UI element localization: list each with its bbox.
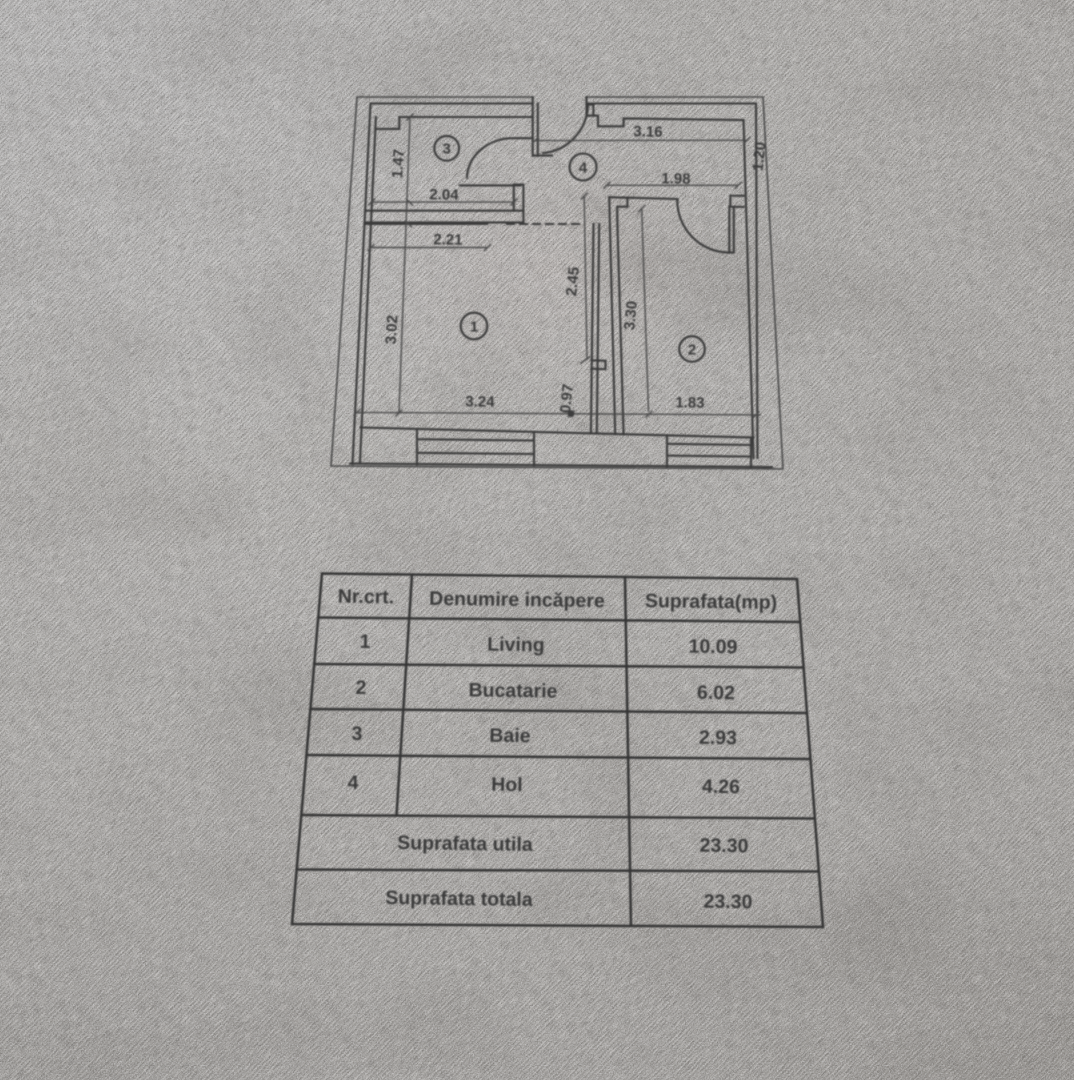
svg-text:3.16: 3.16 [633, 123, 663, 141]
svg-text:2: 2 [355, 677, 366, 699]
svg-text:Hol: Hol [491, 774, 523, 796]
svg-text:Nr.crt.: Nr.crt. [338, 586, 395, 609]
svg-text:Bucatarie: Bucatarie [468, 679, 557, 702]
svg-text:1.98: 1.98 [661, 170, 690, 188]
svg-text:0.97: 0.97 [557, 383, 577, 414]
svg-text:10.09: 10.09 [688, 636, 737, 659]
svg-text:Suprafata totala: Suprafata totala [385, 887, 533, 911]
svg-text:Denumire incăpere: Denumire incăpere [429, 588, 605, 612]
svg-text:2.21: 2.21 [433, 231, 462, 249]
svg-text:1.47: 1.47 [389, 149, 408, 179]
svg-text:3: 3 [351, 723, 362, 745]
svg-text:1.83: 1.83 [675, 394, 704, 412]
svg-text:3.02: 3.02 [383, 315, 402, 345]
svg-text:2.93: 2.93 [699, 727, 737, 750]
svg-text:1: 1 [359, 631, 370, 653]
svg-text:23.30: 23.30 [699, 835, 748, 858]
svg-text:Suprafata utila: Suprafata utila [397, 832, 533, 856]
svg-text:3.24: 3.24 [465, 393, 495, 411]
svg-text:2: 2 [688, 342, 696, 359]
svg-text:6.02: 6.02 [697, 682, 735, 705]
svg-text:4.26: 4.26 [702, 776, 740, 799]
svg-text:4: 4 [347, 772, 358, 794]
svg-text:1: 1 [470, 319, 478, 336]
svg-text:Living: Living [487, 634, 545, 657]
svg-text:Suprafata(mp): Suprafata(mp) [645, 590, 777, 614]
svg-text:23.30: 23.30 [703, 891, 752, 914]
svg-text:Baie: Baie [489, 725, 531, 748]
svg-text:3: 3 [443, 141, 451, 158]
svg-text:3.30: 3.30 [621, 300, 641, 331]
svg-text:2.45: 2.45 [563, 266, 583, 297]
svg-text:1.20: 1.20 [750, 141, 770, 172]
svg-text:4: 4 [579, 160, 588, 177]
svg-text:2.04: 2.04 [429, 186, 459, 204]
